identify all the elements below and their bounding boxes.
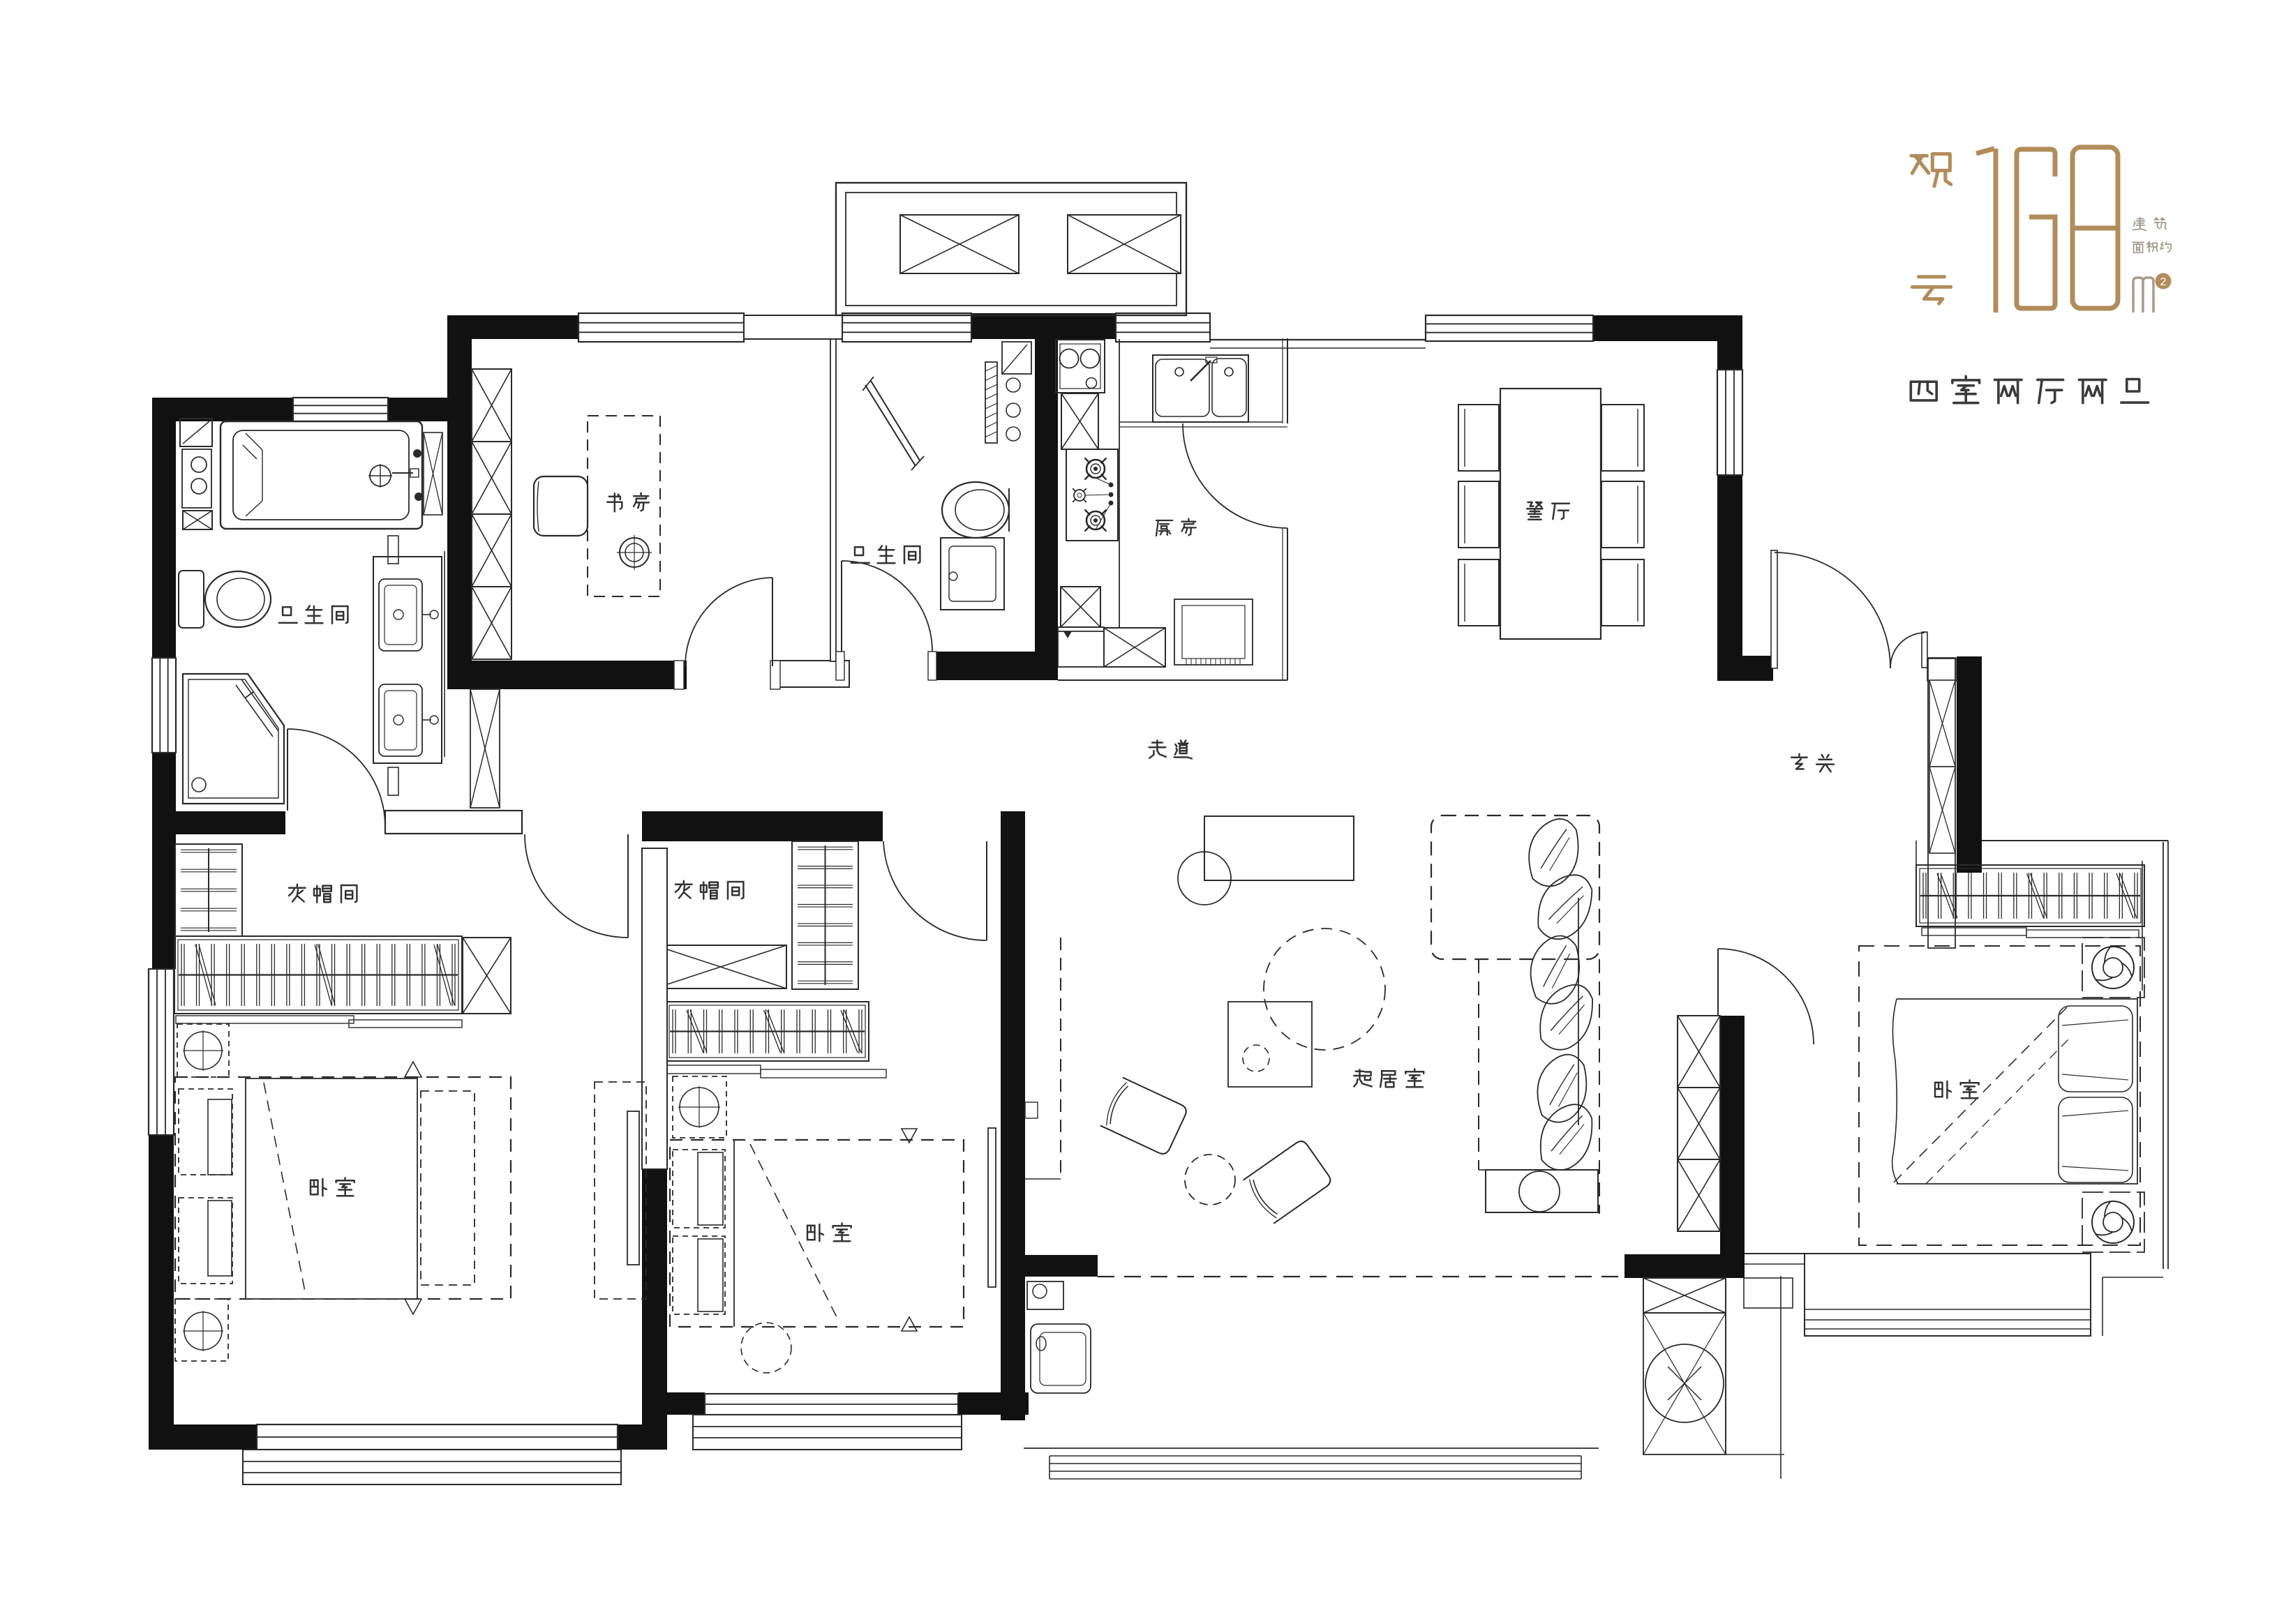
svg-text:2: 2	[2160, 276, 2167, 288]
